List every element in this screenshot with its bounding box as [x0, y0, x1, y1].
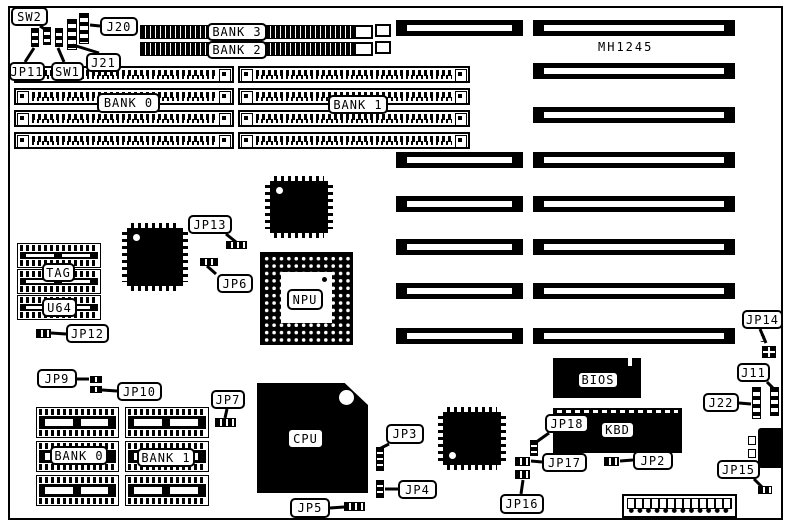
qfp-pins-left — [122, 232, 128, 282]
callout-bank1-top: BANK 1 — [328, 95, 388, 114]
qfp-chipset-3 — [438, 407, 506, 470]
qfp-pins-left — [438, 416, 444, 461]
simm-latch-left — [17, 135, 29, 148]
simm-slot-latch — [354, 25, 373, 39]
isa-slot-stripe — [544, 25, 724, 31]
dip-pins-top — [20, 245, 98, 251]
dip-window — [26, 254, 54, 258]
qfp-pins-right — [182, 232, 188, 282]
j20-header — [79, 13, 89, 44]
motherboard-diagram: SW2J20J21JP11SW1BANK 3BANK 2BANK 0BANK 1… — [0, 0, 791, 527]
j11-header — [770, 387, 779, 416]
callout-cpu: CPU — [287, 428, 324, 449]
callout-jp16: JP16 — [500, 494, 544, 514]
dip-window — [81, 419, 109, 426]
dip-chip-row-dram-bank0 — [36, 475, 119, 506]
isa-slot-stripe — [544, 244, 724, 250]
callout-bank2: BANK 2 — [207, 41, 267, 59]
simm-latch-right — [219, 113, 231, 126]
jp6-jumper — [200, 258, 218, 266]
jp16-jumper — [515, 470, 530, 479]
dip-window — [45, 487, 73, 494]
isa-slot-16bit — [533, 328, 735, 344]
qfp-pins-left — [265, 185, 271, 229]
dip-pins-bottom — [128, 430, 206, 436]
isa-slot-stripe — [407, 201, 512, 207]
simm-latch-right — [219, 91, 231, 104]
jp17-jumper — [515, 457, 530, 466]
simm-latch-left — [241, 91, 253, 104]
simm-socket-row — [14, 132, 234, 149]
dip-window — [62, 254, 90, 258]
callout-jp7: JP7 — [211, 390, 245, 409]
dip-pins-bottom — [39, 498, 116, 504]
keyboard-connector — [758, 428, 783, 468]
dip-chip-row-dram-bank1 — [125, 407, 209, 438]
dip-body — [128, 484, 206, 497]
callout-kbd: KBD — [600, 421, 635, 439]
isa-slot-16bit — [533, 283, 735, 299]
simm-contacts-bottom — [256, 75, 452, 79]
jp9-jumper — [90, 376, 102, 383]
simm-latch-left — [17, 113, 29, 126]
callout-jp10: JP10 — [117, 382, 162, 401]
callout-jp14: JP14 — [742, 310, 783, 329]
dip-pins-top — [128, 409, 206, 415]
j21-header — [67, 19, 77, 50]
callout-jp4: JP4 — [398, 480, 437, 499]
jp13-jumper — [226, 241, 247, 249]
dip-pins-top — [39, 477, 116, 483]
qfp-pins-right — [500, 416, 506, 461]
callout-j22: J22 — [703, 393, 739, 412]
callout-bank1-bottom: BANK 1 — [137, 448, 195, 467]
sw1-block — [55, 28, 63, 47]
pin1-mark — [322, 277, 327, 282]
qfp-chipset-1 — [122, 223, 188, 291]
callout-j21: J21 — [86, 53, 121, 72]
simm-socket-row — [238, 66, 470, 83]
simm-latch-right — [455, 135, 467, 148]
sw2-block — [43, 27, 51, 45]
power-connector — [622, 494, 737, 518]
isa-slot-16bit — [533, 239, 735, 255]
keyboard-connector-pin — [748, 436, 756, 445]
callout-jp2: JP2 — [633, 451, 673, 470]
dip-window — [134, 487, 162, 494]
dip-window — [81, 487, 109, 494]
dip-pins-bottom — [128, 498, 206, 504]
jp12-jumper — [36, 329, 51, 338]
simm-latch-right — [455, 113, 467, 126]
callout-jp15: JP15 — [717, 460, 760, 479]
callout-npu: NPU — [287, 289, 323, 310]
simm-slot-end — [375, 24, 391, 37]
isa-slot-8bit — [396, 328, 523, 344]
callout-jp18: JP18 — [545, 414, 589, 433]
dip-chip-row-dram-bank0 — [36, 407, 119, 438]
simm-contacts-bottom — [32, 141, 216, 145]
j22-header — [752, 387, 761, 419]
jp10-jumper — [90, 386, 102, 393]
simm-latch-left — [241, 69, 253, 82]
isa-slot-stripe — [407, 25, 512, 31]
qfp-pins-right — [327, 185, 333, 229]
callout-model: MH1245 — [598, 40, 672, 54]
dip-body — [128, 416, 206, 429]
pin1-dot — [276, 187, 283, 194]
isa-slot-stripe — [544, 157, 724, 163]
keyboard-connector-pin — [748, 449, 756, 458]
callout-jp13: JP13 — [188, 215, 232, 234]
isa-slot-16bit — [533, 63, 735, 79]
bios-notch — [628, 358, 632, 366]
qfp-pins-top — [131, 223, 179, 229]
isa-slot-stripe — [544, 201, 724, 207]
simm-socket-row — [238, 132, 470, 149]
qfp-pins-bottom — [447, 464, 497, 470]
callout-bank0-bottom: BANK 0 — [50, 446, 108, 465]
qfp-pins-bottom — [131, 285, 179, 291]
simm-socket-row — [14, 66, 234, 83]
jp11-block — [31, 28, 39, 47]
jp5-jumper — [344, 502, 365, 511]
dip-body — [20, 252, 98, 259]
pin1-dot — [449, 452, 456, 459]
jp15-jumper — [758, 486, 772, 494]
callout-jp12: JP12 — [66, 324, 109, 343]
simm-contacts-bottom — [32, 119, 216, 123]
callout-jp11: JP11 — [9, 62, 45, 81]
kbd-socket-line — [557, 410, 678, 413]
isa-slot-16bit — [533, 152, 735, 168]
isa-slot-stripe — [544, 333, 724, 339]
dip-window — [170, 487, 198, 494]
isa-slot-stripe — [544, 288, 724, 294]
qfp-pins-bottom — [274, 232, 324, 238]
isa-slot-8bit — [396, 283, 523, 299]
dip-window — [170, 419, 198, 426]
simm-slot-end — [375, 41, 391, 54]
isa-slot-stripe — [407, 333, 512, 339]
dip-window — [45, 419, 73, 426]
jp4-jumper — [376, 480, 384, 498]
simm-contacts-bottom — [256, 141, 452, 145]
isa-slot-8bit — [396, 239, 523, 255]
callout-tag: TAG — [42, 263, 75, 282]
callout-bios: BIOS — [577, 371, 619, 389]
jp18-jumper — [530, 440, 538, 456]
jp3-jumper — [376, 447, 384, 471]
simm-latch-right — [219, 69, 231, 82]
power-solder-row — [627, 507, 732, 514]
dip-body — [39, 416, 116, 429]
isa-slot-8bit — [396, 20, 523, 36]
isa-slot-stripe — [407, 244, 512, 250]
simm-latch-left — [241, 135, 253, 148]
pin1-dot — [133, 234, 140, 241]
dip-pins-top — [39, 409, 116, 415]
dip-pins-bottom — [39, 430, 116, 436]
callout-j20: J20 — [100, 17, 138, 36]
callout-u64: U64 — [42, 298, 77, 317]
simm-contacts-bottom — [256, 119, 452, 123]
isa-slot-16bit — [533, 107, 735, 123]
callout-sw2: SW2 — [11, 7, 48, 26]
dip-pins-bottom — [20, 286, 98, 292]
callout-jp17: JP17 — [542, 453, 587, 472]
isa-slot-8bit — [396, 196, 523, 212]
qfp-chipset-2 — [265, 176, 333, 238]
callout-bank3: BANK 3 — [207, 23, 267, 41]
callout-jp3: JP3 — [386, 424, 424, 444]
pin1-dot — [339, 390, 354, 405]
isa-slot-stripe — [407, 157, 512, 163]
dip-body — [39, 484, 116, 497]
isa-slot-stripe — [544, 112, 724, 118]
callout-jp14-pin3: 3 — [760, 333, 772, 345]
isa-slot-16bit — [533, 20, 735, 36]
simm-latch-right — [455, 91, 467, 104]
dip-window — [134, 419, 162, 426]
callout-jp6: JP6 — [217, 274, 253, 293]
simm-latch-right — [219, 135, 231, 148]
callout-jp5: JP5 — [290, 498, 330, 518]
qfp-pins-top — [274, 176, 324, 182]
dip-pins-top — [128, 477, 206, 483]
jp14-pin-block — [762, 346, 776, 358]
callout-jp9: JP9 — [37, 369, 77, 388]
jp7-jumper — [215, 418, 236, 427]
callout-bank0-top: BANK 0 — [97, 93, 160, 113]
simm-latch-left — [241, 113, 253, 126]
callout-j11: J11 — [737, 363, 770, 382]
jp2-jumper — [604, 457, 619, 466]
simm-latch-left — [17, 91, 29, 104]
qfp-pins-top — [447, 407, 497, 413]
callout-sw1: SW1 — [51, 62, 84, 81]
simm-slot-latch — [354, 42, 373, 56]
simm-latch-right — [455, 69, 467, 82]
isa-slot-8bit — [396, 152, 523, 168]
isa-slot-16bit — [533, 196, 735, 212]
isa-slot-stripe — [407, 288, 512, 294]
isa-slot-stripe — [544, 68, 724, 74]
dip-chip-row-dram-bank1 — [125, 475, 209, 506]
